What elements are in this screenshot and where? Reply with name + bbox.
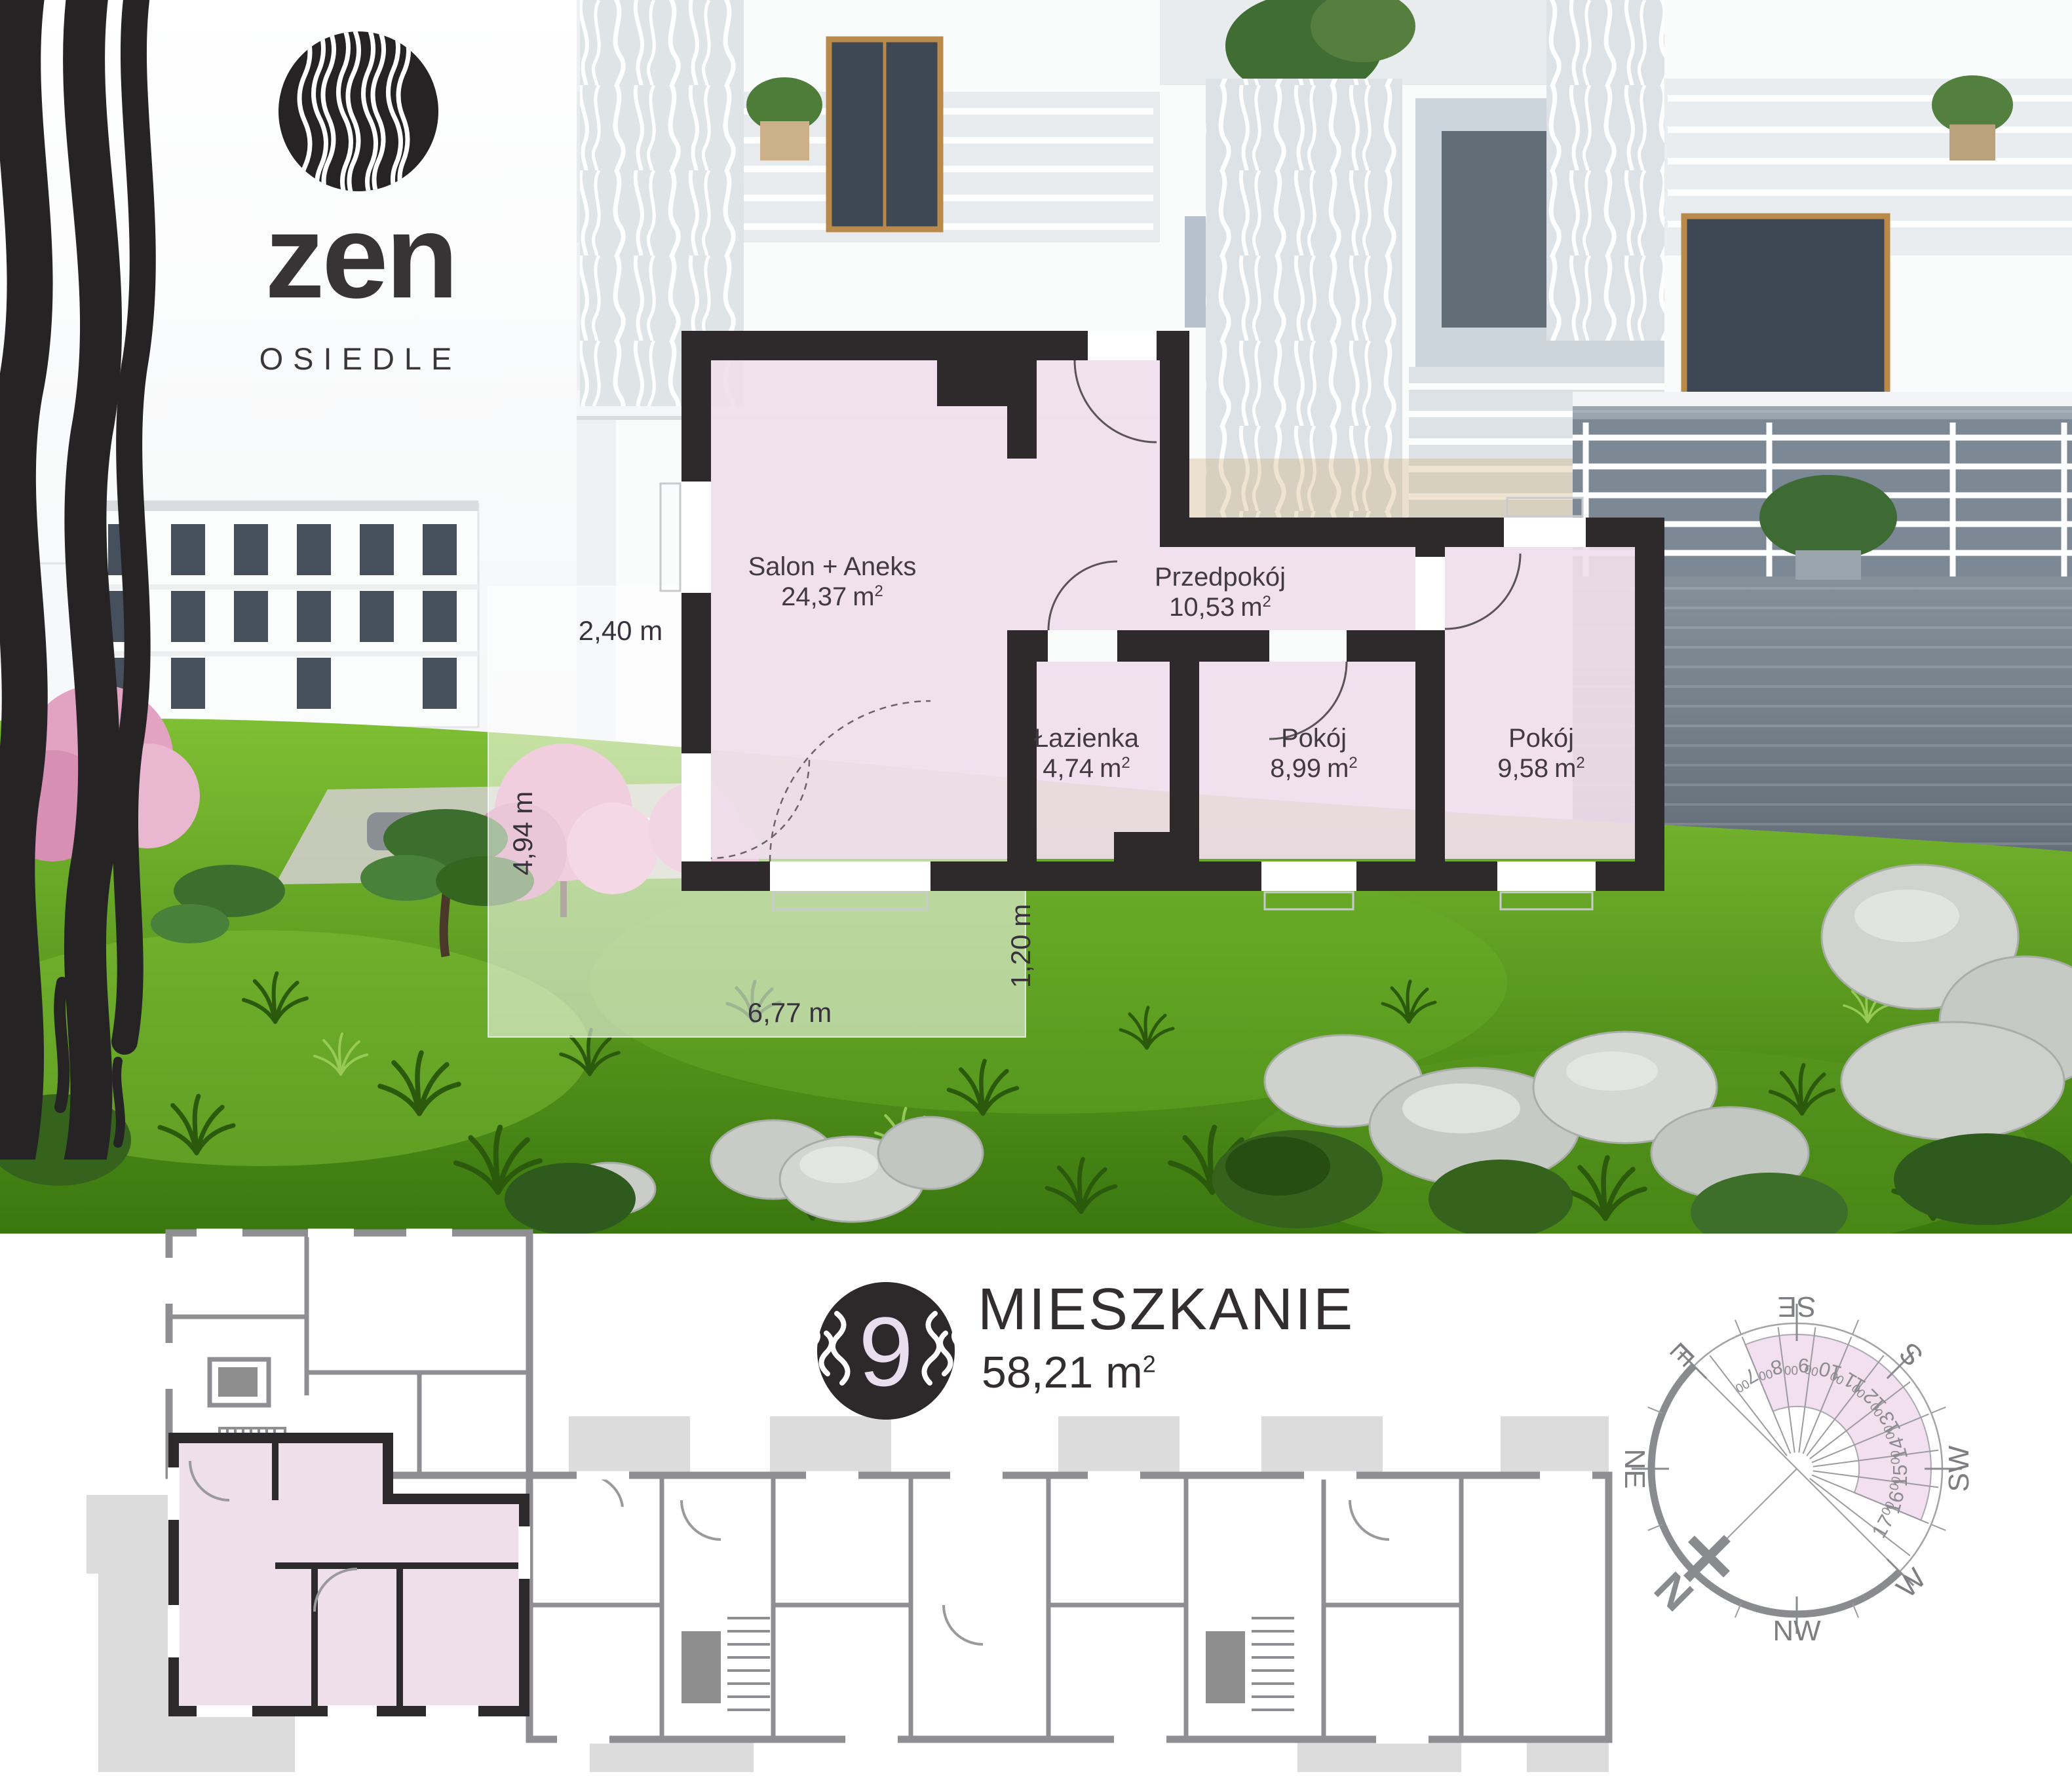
room-area-lazienka: 4,74m2 (1043, 754, 1130, 783)
compass-sw: SW (1943, 1445, 1975, 1492)
room-label-pokoj1: Pokój (1281, 724, 1347, 753)
room-label-przedpokoj: Przedpokój (1155, 563, 1286, 592)
apartment-area: 58,21 m2 (982, 1347, 1156, 1398)
room-area-pokoj2: 9,58m2 (1497, 754, 1585, 783)
sun-compass: SE S SW W NW N NE E 700 800 900 1000 110… (1619, 1291, 1975, 1647)
room-label-salon: Salon + Aneks (748, 552, 917, 581)
window (1684, 216, 1887, 413)
compass-nw: NW (1773, 1615, 1821, 1647)
apartment-number-badge: 9 (807, 1272, 965, 1429)
room-area-pokoj1: 8,99m2 (1270, 754, 1358, 783)
room-area-przedpokoj: 10,53m2 (1169, 593, 1271, 622)
brand-subtitle: OSIEDLE (216, 341, 505, 377)
dimension-bottom: 6,77 m (748, 997, 832, 1028)
brochure-page: Salon + Aneks 24,37m2 Przedpokój 10,53m2… (0, 0, 2072, 1776)
room-area-salon: 24,37m2 (781, 582, 883, 611)
brand-name: zen (216, 197, 505, 316)
highlighted-apartment (174, 1438, 524, 1711)
dimension-top: 2,40 m (579, 615, 662, 646)
dimension-left: 4,94 m (507, 791, 538, 875)
elevator (218, 1367, 258, 1397)
compass-ne: NE (1619, 1448, 1651, 1488)
zen-logo-icon (278, 29, 438, 193)
dimension-right: 1,20 m (1005, 904, 1036, 988)
apartment-title: MIESZKANIE (978, 1276, 1354, 1344)
north-needle (1687, 1538, 1727, 1579)
compass-se: SE (1778, 1291, 1816, 1323)
decorative-wave-strip (0, 0, 170, 1160)
room-label-lazienka: Łazienka (1034, 724, 1140, 753)
room-pokoj2-fill (1445, 547, 1635, 859)
room-label-pokoj2: Pokój (1508, 724, 1574, 753)
apartment-number: 9 (858, 1296, 913, 1407)
